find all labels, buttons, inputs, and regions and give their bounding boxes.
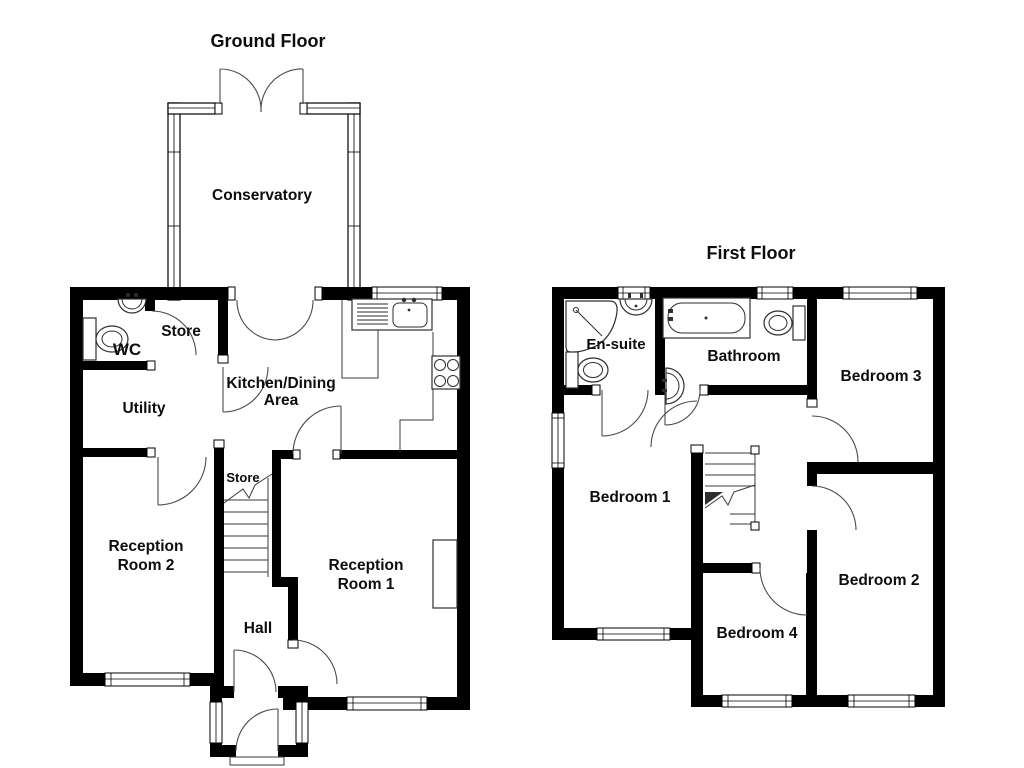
reception1-door-icon [293,406,341,454]
reception2-window-icon [105,673,190,686]
bedroom2-window-icon [848,695,915,707]
ground-floor-title: Ground Floor [211,31,326,51]
front-door-icon [230,709,284,765]
ground-floor-plan: Ground Floor Conservatory Store WC Utili… [70,31,470,765]
ensuite-door-icon [602,390,648,436]
kitchen-double-doors-icon [237,300,313,340]
ensuite-window-icon [618,287,650,299]
room-label-kitchen-line1: Kitchen/Dining [226,375,335,392]
bath-icon [663,298,750,338]
bedroom4-window-icon [722,695,792,707]
bedroom2-door-icon [812,486,856,530]
ground-stairs-icon [224,474,272,577]
bedroom3-window-icon [843,287,917,299]
conservatory-double-doors-icon [220,69,303,112]
reception2-door-icon [158,457,206,505]
reception1-window-icon [347,697,427,710]
room-label-reception2-line2: Room 2 [118,557,175,574]
floor-plan-page: Ground Floor Conservatory Store WC Utili… [0,0,1024,768]
ensuite-toilet-icon [566,352,608,388]
kitchen-window-icon [372,287,442,300]
room-label-reception2-line1: Reception [109,538,184,555]
room-label-conservatory: Conservatory [212,187,312,204]
room-label-bedroom1: Bedroom 1 [590,489,671,506]
bathroom-window-icon [757,287,793,299]
bedroom1-side-window-icon [552,413,564,468]
hall-inner-door-icon [234,650,276,692]
room-label-reception1-line1: Reception [329,557,404,574]
bathroom-toilet-icon [764,306,805,340]
hob-icon [432,356,460,389]
first-floor-title: First Floor [707,243,796,263]
room-label-store-top: Store [161,323,201,340]
porch-window-right-icon [296,702,308,743]
first-floor-plan: First Floor En-suite Bathroom Bedroom 3 … [552,243,945,707]
fireplace [433,540,457,608]
room-label-bathroom: Bathroom [707,348,780,365]
floor-plan-drawing: Ground Floor Conservatory Store WC Utili… [0,0,1024,768]
bedroom1-window-icon [597,628,670,640]
first-stairs-icon [705,446,759,530]
room-label-hall: Hall [244,620,272,637]
room-label-ensuite: En-suite [586,336,645,353]
room-label-bedroom4: Bedroom 4 [717,625,798,642]
hall-reception1-door-icon [293,640,337,684]
room-label-bedroom3: Bedroom 3 [841,368,922,385]
bedroom3-door-icon [812,416,858,462]
room-label-wc: WC [113,340,141,359]
room-label-utility: Utility [122,400,165,417]
room-label-kitchen-line2: Area [264,392,299,409]
kitchen-sink-icon [352,298,432,330]
room-label-bedroom2: Bedroom 2 [839,572,920,589]
ground-doors [152,300,341,765]
porch-window-left-icon [210,702,222,743]
room-label-store-stairs: Store [226,470,259,485]
room-label-reception1-line2: Room 1 [338,576,395,593]
bedroom4-door-icon [760,568,807,615]
